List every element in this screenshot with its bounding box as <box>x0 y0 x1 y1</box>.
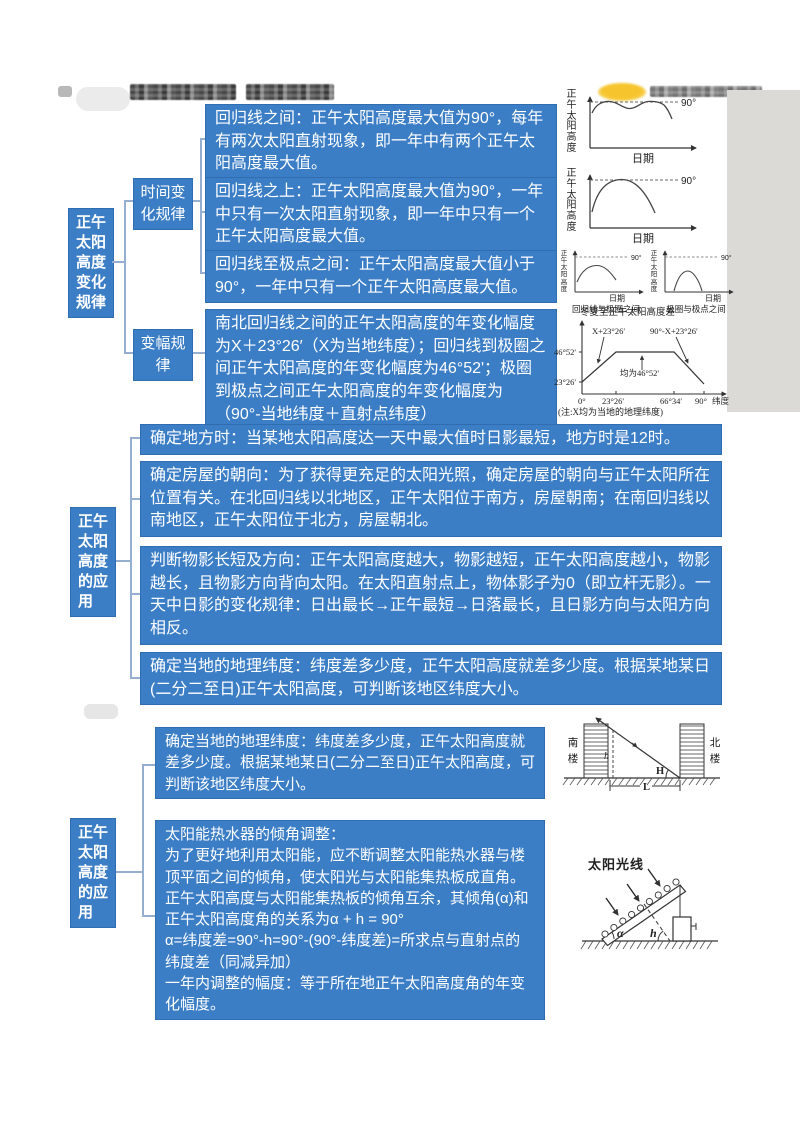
faded-smudge-watermark <box>84 704 118 719</box>
connector <box>130 498 140 500</box>
connector <box>116 560 130 562</box>
annotation-flat: 均为46°52′ <box>620 368 659 378</box>
water-tank <box>673 917 691 941</box>
branch-time-variation-label: 时间变化规律 <box>133 178 193 230</box>
branch-amplitude-label: 变幅规律 <box>133 329 193 381</box>
y-axis-label: 正午太阳高度 <box>566 90 577 155</box>
connector <box>142 764 155 766</box>
connector <box>112 261 124 263</box>
solar-heater-para-2: α=纬度差=90°-h=90°-(90°-纬度差)=所求点与直射点的纬度差（同减… <box>165 930 535 973</box>
y-tick-46-52: 46°52′ <box>554 347 576 357</box>
app-latitude-2: 确定当地的地理纬度：纬度差多少度，正午太阳高度就差多少度。根据某地某日(二分二至… <box>155 727 545 799</box>
x-tick-66-34: 66°34′ <box>660 396 682 406</box>
connector <box>130 593 140 595</box>
section2-root-label: 正午太阳高度的应用 <box>70 507 116 617</box>
connector <box>124 352 133 354</box>
x-axis-label: 日期 <box>632 232 654 245</box>
leaf-between-tropics: 回归线之间：正午太阳高度最大值为90°，每年有两次太阳直射现象，即一年中有两个正… <box>205 104 557 180</box>
solar-heater-title: 太阳能热水器的倾角调整： <box>165 824 535 845</box>
ref-90-label: 90° <box>721 254 732 262</box>
connector <box>142 764 144 916</box>
chart-polar-circle-to-pole: 正午太阳高度 90° 日期 极圈与极点之间 <box>650 246 742 312</box>
chart-two-direct-hits-plot: 90° 日期 <box>580 88 730 168</box>
connector <box>130 437 140 439</box>
connector <box>193 352 205 354</box>
leaf-on-tropics: 回归线之上：正午太阳高度最大值为90°，一年中只有一次太阳直射现象，即一年中只有… <box>205 177 557 253</box>
sun-altitude-angle-label: h <box>650 926 657 940</box>
annotation-fall: 90°-X+23°26′ <box>650 326 698 336</box>
connector <box>200 138 202 273</box>
connector <box>193 200 200 202</box>
x-tick-0: 0° <box>578 396 586 406</box>
censored-logo-fragment <box>58 86 72 97</box>
building-spacing-label: L <box>643 782 650 793</box>
north-building-label: 北楼 <box>709 736 721 768</box>
sunlight-label: 太阳光线 <box>587 857 644 872</box>
censored-title-watermark-1 <box>130 84 236 100</box>
section1-root-label: 正午太阳高度变化规律 <box>68 208 114 318</box>
annotation-rise: X+23°26′ <box>592 326 625 336</box>
ref-90-label: 90° <box>681 176 696 187</box>
connector <box>124 200 133 202</box>
chart-two-direct-hits: 正午太阳高度 90° 日期 <box>566 88 736 168</box>
south-building-label: 南楼 <box>567 736 579 768</box>
leaf-amplitude-rule: 南北回归线之间的正午太阳高度的年变化幅度为X＋23°26′（X为当地纬度）；回归… <box>205 309 557 431</box>
ref-90-label: 90° <box>681 98 696 109</box>
app-shadow-length: 判断物影长短及方向：正午太阳高度越大，物影越短，正午太阳高度越小，物影越长，且物… <box>140 546 722 645</box>
chart-polar-circle-to-pole-plot: 90° 日期 <box>659 246 742 302</box>
x-axis-unit: 纬度 <box>712 396 730 406</box>
solar-heater-para-1: 为了更好地利用太阳能，应不断调整太阳能热水器与楼顶平面之间的倾角，使太阳光与太阳… <box>165 845 535 930</box>
y-axis-label: 正午太阳高度 <box>566 169 577 234</box>
x-tick-23-26: 23°26′ <box>602 396 624 406</box>
y-axis-label: 正午太阳高度 <box>650 250 658 293</box>
x-tick-90: 90° <box>695 396 707 406</box>
solar-heater-para-3: 一年内调整的幅度：等于所在地正午太阳高度角的年变化幅度。 <box>165 973 535 1016</box>
connector <box>200 138 205 140</box>
sun-ray <box>596 718 680 778</box>
tank-valve <box>691 923 696 930</box>
connector <box>142 915 155 917</box>
x-axis-label: 日期 <box>705 294 721 302</box>
connector <box>130 677 140 679</box>
app-house-orientation: 确定房屋的朝向：为了获得更充足的太阳光照，确定房屋的朝向与正午太阳所在位置有关。… <box>140 461 722 537</box>
building-shadow-plot: h H L <box>556 716 726 806</box>
panel-tilt-angle-label: α <box>617 926 624 940</box>
chart-one-direct-hit: 正午太阳高度 90° 日期 <box>566 166 736 248</box>
y-tick-23-26: 23°26′ <box>554 377 576 387</box>
section3-root-label: 正午太阳高度的应用 <box>70 818 116 928</box>
x-axis-label: 日期 <box>609 294 625 302</box>
connector <box>124 200 126 352</box>
chart-tropic-to-polar-circle: 正午太阳高度 90° 日期 回归线与极圈之间 <box>560 246 652 312</box>
amplitude-diagram-note: (注:X均为当地的地理纬度) <box>558 406 663 417</box>
page: 正午太阳高度变化规律 时间变化规律 变幅规律 回归线之间：正午太阳高度最大值为9… <box>0 0 800 1132</box>
south-building-height-label: h <box>604 751 609 762</box>
connector <box>200 272 205 274</box>
ref-90-label: 90° <box>631 254 642 262</box>
connector <box>116 871 142 873</box>
y-axis-label: 正午太阳高度 <box>560 250 568 293</box>
app-latitude: 确定当地的地理纬度：纬度差多少度，正午太阳高度就差多少度。根据某地某日(二分二至… <box>140 652 722 705</box>
chart-one-direct-hit-plot: 90° 日期 <box>580 166 730 248</box>
app-solar-heater: 太阳能热水器的倾角调整： 为了更好地利用太阳能，应不断调整太阳能热水器与楼顶平面… <box>155 820 545 1020</box>
solar-heater-diagram: 太阳光线 α h <box>554 845 726 973</box>
chart-tropic-to-polar-circle-plot: 90° 日期 <box>569 246 652 302</box>
leaf-tropic-to-pole: 回归线至极点之间：正午太阳高度最大值小于90°，一年中只有一个正午太阳高度最大值… <box>205 250 557 303</box>
amplitude-diagram: 冬夏至正午太阳高度差 46°52′ 23°26′ 0° 23°26′ 66°34… <box>552 304 738 418</box>
building-shadow-diagram: h H L 南楼 北楼 <box>556 716 726 806</box>
sun-altitude-angle-label: H <box>656 766 664 777</box>
connector <box>200 211 205 213</box>
censored-title-watermark-2 <box>246 84 334 100</box>
faded-logo-watermark <box>76 87 130 111</box>
app-local-time: 确定地方时：当某地太阳高度达一天中最大值时日影最短，地方时是12时。 <box>140 424 722 455</box>
connector <box>130 437 132 678</box>
x-axis-label: 日期 <box>632 152 654 165</box>
amplitude-diagram-title: 冬夏至正午太阳高度差 <box>580 306 675 318</box>
